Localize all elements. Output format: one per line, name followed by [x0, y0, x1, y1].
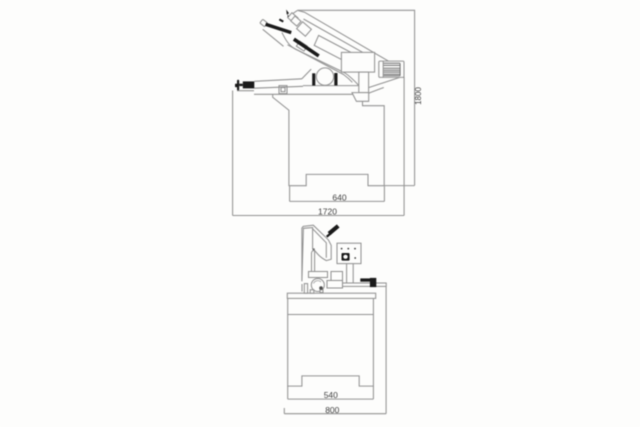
svg-text:1800: 1800 — [414, 87, 423, 105]
svg-text:1720: 1720 — [318, 207, 337, 217]
svg-text:800: 800 — [325, 405, 339, 415]
svg-text:540: 540 — [324, 390, 338, 400]
svg-text:640: 640 — [332, 192, 346, 202]
